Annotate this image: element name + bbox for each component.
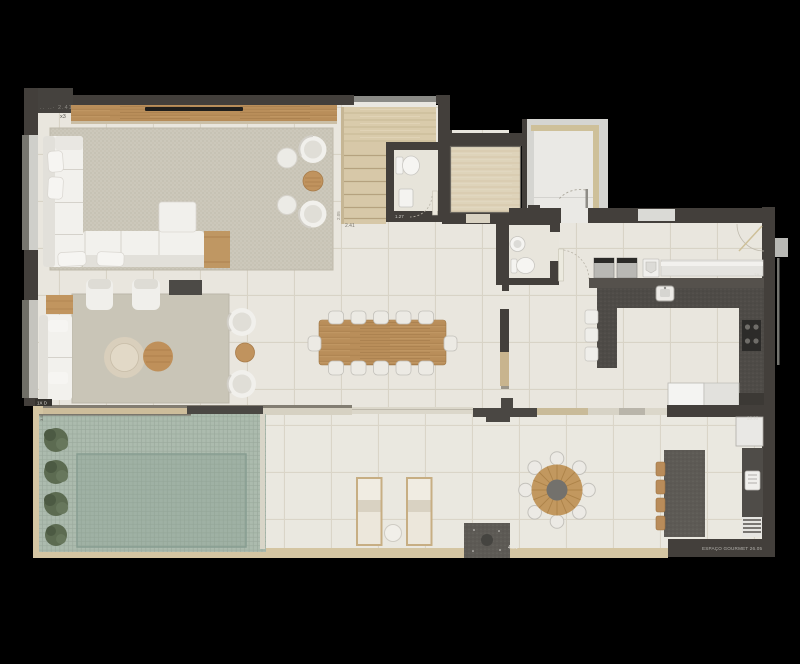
svg-text:x3: x3 <box>60 114 66 120</box>
svg-text:.. ..· 2.41: .. ..· 2.41 <box>40 105 73 111</box>
svg-text:4.51: 4.51 <box>508 545 518 551</box>
svg-text:2.41: 2.41 <box>345 223 355 229</box>
svg-text:ESPAÇO GOURMET 26.05: ESPAÇO GOURMET 26.05 <box>702 546 762 551</box>
svg-text:1X D: 1X D <box>37 401 48 406</box>
svg-text:1.27: 1.27 <box>395 214 404 219</box>
svg-text:3.5: 3.5 <box>39 415 44 421</box>
svg-text:2.05: 2.05 <box>336 211 341 220</box>
svg-text:2X: 2X <box>754 273 760 278</box>
svg-text:26.93: 26.93 <box>747 416 759 421</box>
